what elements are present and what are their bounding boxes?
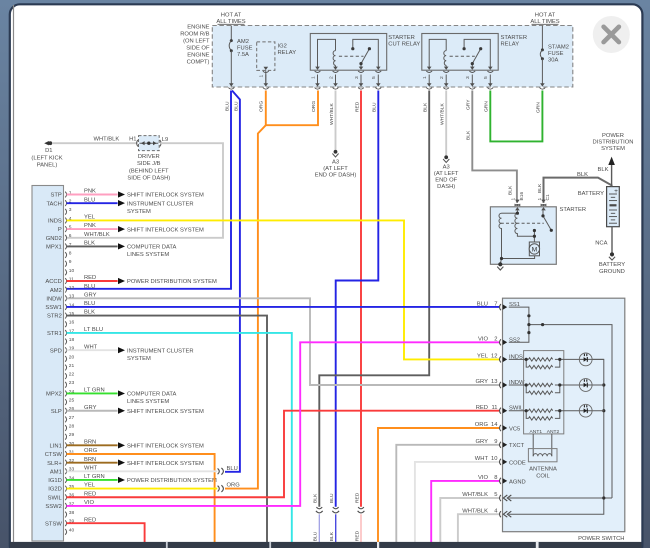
svg-text:WHT/BLK: WHT/BLK bbox=[440, 103, 446, 125]
svg-text:WHT/BLK: WHT/BLK bbox=[329, 103, 335, 125]
svg-text:CUT RELAY: CUT RELAY bbox=[388, 41, 420, 47]
svg-text:(BEHIND LEFT: (BEHIND LEFT bbox=[129, 168, 169, 174]
svg-text:RED: RED bbox=[354, 101, 360, 112]
svg-text:3: 3 bbox=[354, 76, 360, 79]
svg-text:RED: RED bbox=[354, 530, 360, 541]
svg-text:BLU: BLU bbox=[224, 101, 230, 111]
svg-text:WHT: WHT bbox=[475, 456, 489, 462]
svg-text:SIDE J/B: SIDE J/B bbox=[137, 161, 161, 167]
svg-text:D1: D1 bbox=[45, 148, 52, 154]
svg-text:10: 10 bbox=[69, 268, 75, 274]
svg-text:CTSW: CTSW bbox=[45, 452, 63, 458]
svg-text:22: 22 bbox=[69, 372, 75, 378]
svg-text:B16: B16 bbox=[519, 192, 525, 201]
svg-text:STARTER: STARTER bbox=[560, 207, 587, 213]
svg-text:P: P bbox=[58, 227, 62, 233]
svg-text:BLK: BLK bbox=[577, 172, 588, 178]
svg-text:GND2: GND2 bbox=[46, 236, 62, 242]
svg-text:INSTRUMENT CLUSTER: INSTRUMENT CLUSTER bbox=[127, 348, 194, 354]
svg-text:AM2: AM2 bbox=[50, 288, 62, 294]
svg-text:BLU: BLU bbox=[329, 493, 335, 503]
svg-text:STSW: STSW bbox=[45, 521, 62, 527]
svg-text:END OF DASH): END OF DASH) bbox=[315, 172, 357, 178]
svg-text:LINES SYSTEM: LINES SYSTEM bbox=[127, 399, 169, 405]
svg-text:SIDE OF: SIDE OF bbox=[186, 46, 210, 52]
svg-text:SWIL: SWIL bbox=[48, 495, 63, 501]
svg-text:VIO: VIO bbox=[478, 475, 488, 481]
svg-text:SLR+: SLR+ bbox=[47, 461, 62, 467]
svg-text:SSW2: SSW2 bbox=[45, 504, 61, 510]
svg-text:SHIFT INTERLOCK SYSTEM: SHIFT INTERLOCK SYSTEM bbox=[127, 461, 204, 467]
svg-text:BLU: BLU bbox=[313, 531, 319, 541]
svg-text:14: 14 bbox=[491, 422, 498, 428]
svg-text:M: M bbox=[532, 246, 538, 253]
svg-text:SYSTEM: SYSTEM bbox=[601, 146, 625, 152]
svg-text:ENGINE: ENGINE bbox=[187, 53, 209, 59]
svg-text:30A: 30A bbox=[548, 57, 558, 63]
svg-text:TACH: TACH bbox=[46, 201, 61, 207]
svg-text:STARTER: STARTER bbox=[388, 35, 415, 41]
svg-text:GRN: GRN bbox=[536, 102, 542, 113]
svg-text:END OF: END OF bbox=[435, 178, 457, 184]
svg-text:STR2: STR2 bbox=[47, 314, 62, 320]
svg-text:ORG: ORG bbox=[475, 422, 489, 428]
svg-text:12: 12 bbox=[491, 354, 497, 360]
svg-text:BLU: BLU bbox=[372, 102, 378, 112]
svg-text:INSTRUMENT CLUSTER: INSTRUMENT CLUSTER bbox=[127, 201, 194, 207]
svg-text:AGND: AGND bbox=[509, 479, 526, 485]
svg-text:BATTERY: BATTERY bbox=[578, 191, 604, 197]
svg-text:ORG: ORG bbox=[259, 101, 265, 112]
svg-text:SSW1: SSW1 bbox=[45, 305, 61, 311]
svg-text:(AT LEFT: (AT LEFT bbox=[323, 166, 348, 172]
svg-text:A3: A3 bbox=[332, 159, 339, 165]
svg-text:FUSE: FUSE bbox=[548, 51, 564, 57]
svg-text:3: 3 bbox=[465, 76, 471, 79]
svg-text:NCA: NCA bbox=[595, 240, 607, 246]
svg-text:ANTENNA: ANTENNA bbox=[529, 466, 557, 472]
svg-text:BLU: BLU bbox=[84, 284, 95, 290]
svg-text:1: 1 bbox=[258, 75, 264, 78]
svg-text:RELAY: RELAY bbox=[501, 41, 520, 47]
svg-text:GRN: GRN bbox=[484, 101, 490, 112]
svg-text:CODE: CODE bbox=[509, 460, 526, 466]
svg-text:COIL: COIL bbox=[536, 473, 550, 479]
svg-text:GRY: GRY bbox=[466, 99, 472, 110]
svg-text:21: 21 bbox=[69, 363, 75, 369]
svg-text:SYSTEM: SYSTEM bbox=[127, 209, 151, 215]
svg-text:7: 7 bbox=[494, 301, 497, 307]
svg-text:28: 28 bbox=[69, 423, 75, 429]
svg-text:20: 20 bbox=[69, 354, 75, 360]
svg-text:POWER SWITCH: POWER SWITCH bbox=[578, 536, 624, 542]
svg-text:8: 8 bbox=[494, 475, 497, 481]
svg-text:HOT AT: HOT AT bbox=[535, 13, 556, 19]
svg-text:FUSE: FUSE bbox=[237, 46, 253, 52]
svg-text:INDW: INDW bbox=[46, 296, 62, 302]
svg-text:STP: STP bbox=[51, 193, 62, 199]
svg-text:A3: A3 bbox=[443, 165, 450, 171]
svg-text:WHT/BLK: WHT/BLK bbox=[462, 508, 488, 514]
svg-text:C1: C1 bbox=[545, 194, 551, 201]
svg-text:AM1: AM1 bbox=[50, 469, 62, 475]
svg-text:(ON LEFT: (ON LEFT bbox=[183, 39, 210, 45]
svg-text:INDS: INDS bbox=[48, 219, 62, 225]
svg-text:BLK: BLK bbox=[423, 102, 429, 112]
svg-text:ANT2: ANT2 bbox=[547, 429, 560, 435]
svg-text:27: 27 bbox=[69, 415, 75, 421]
svg-text:16: 16 bbox=[69, 320, 75, 326]
svg-text:IG1D: IG1D bbox=[48, 478, 62, 484]
svg-text:WHT/BLK: WHT/BLK bbox=[94, 137, 120, 143]
svg-text:HOT AT: HOT AT bbox=[221, 13, 242, 19]
svg-text:(LEFT KICK: (LEFT KICK bbox=[31, 155, 62, 161]
svg-text:WHT/BLK: WHT/BLK bbox=[462, 492, 488, 498]
svg-text:L9: L9 bbox=[162, 137, 168, 143]
svg-text:5: 5 bbox=[371, 76, 377, 79]
svg-text:BATTERY: BATTERY bbox=[599, 262, 625, 268]
svg-text:BLK: BLK bbox=[466, 130, 472, 140]
svg-text:2: 2 bbox=[328, 76, 334, 79]
svg-text:MPX1: MPX1 bbox=[46, 245, 62, 251]
svg-text:STR1: STR1 bbox=[47, 331, 62, 337]
svg-text:RED: RED bbox=[354, 492, 360, 503]
svg-text:IG2D: IG2D bbox=[48, 487, 62, 493]
svg-text:ACCD: ACCD bbox=[45, 279, 61, 285]
svg-text:9: 9 bbox=[494, 439, 497, 445]
svg-text:ORG: ORG bbox=[227, 483, 241, 489]
svg-text:RED: RED bbox=[476, 405, 488, 411]
svg-text:23: 23 bbox=[69, 380, 75, 386]
svg-text:+: + bbox=[614, 188, 618, 195]
svg-text:2: 2 bbox=[439, 76, 445, 79]
svg-text:TXCT: TXCT bbox=[509, 443, 525, 449]
svg-text:POWER: POWER bbox=[602, 133, 624, 139]
svg-text:DISTRIBUTION: DISTRIBUTION bbox=[593, 139, 634, 145]
svg-text:BLK: BLK bbox=[508, 185, 514, 195]
svg-text:9: 9 bbox=[69, 259, 72, 265]
svg-text:COMPUTER DATA: COMPUTER DATA bbox=[127, 245, 177, 251]
svg-text:6: 6 bbox=[69, 233, 72, 239]
svg-text:BLU: BLU bbox=[477, 301, 488, 307]
svg-text:10: 10 bbox=[491, 456, 497, 462]
svg-text:COMPUTER DATA: COMPUTER DATA bbox=[127, 392, 177, 398]
svg-text:GRY: GRY bbox=[476, 379, 489, 385]
svg-text:SHIFT INTERLOCK SYSTEM: SHIFT INTERLOCK SYSTEM bbox=[127, 409, 204, 415]
svg-text:STARTER: STARTER bbox=[501, 35, 528, 41]
svg-text:1: 1 bbox=[422, 76, 428, 79]
svg-text:IG2: IG2 bbox=[278, 43, 287, 49]
svg-text:SLP: SLP bbox=[51, 409, 62, 415]
svg-text:18: 18 bbox=[69, 337, 75, 343]
svg-text:29: 29 bbox=[69, 432, 75, 438]
svg-text:SHIFT INTERLOCK SYSTEM: SHIFT INTERLOCK SYSTEM bbox=[127, 444, 204, 450]
svg-text:11: 11 bbox=[491, 405, 497, 411]
svg-text:POWER DISTRIBUTION SYSTEM: POWER DISTRIBUTION SYSTEM bbox=[127, 279, 217, 285]
svg-text:1: 1 bbox=[310, 76, 316, 79]
svg-text:13: 13 bbox=[491, 379, 497, 385]
svg-text:LIN1: LIN1 bbox=[50, 443, 62, 449]
svg-text:BLU: BLU bbox=[234, 101, 240, 111]
svg-text:VC5: VC5 bbox=[509, 426, 520, 432]
svg-text:8: 8 bbox=[69, 250, 72, 256]
svg-text:BLK: BLK bbox=[537, 183, 543, 193]
svg-text:25: 25 bbox=[69, 398, 75, 404]
svg-text:H1: H1 bbox=[129, 136, 136, 142]
svg-text:POWER DISTRIBUTION SYSTEM: POWER DISTRIBUTION SYSTEM bbox=[127, 478, 217, 484]
svg-text:BLK: BLK bbox=[598, 167, 609, 173]
svg-text:SPD: SPD bbox=[50, 348, 62, 354]
svg-text:VIO: VIO bbox=[478, 337, 488, 343]
svg-text:AM2: AM2 bbox=[237, 39, 249, 45]
svg-text:7.5A: 7.5A bbox=[237, 52, 249, 58]
svg-text:5: 5 bbox=[483, 76, 489, 79]
svg-text:BLU: BLU bbox=[227, 466, 238, 472]
svg-text:ANT1: ANT1 bbox=[530, 429, 543, 435]
svg-text:BLK: BLK bbox=[329, 531, 335, 541]
svg-text:MPX2: MPX2 bbox=[46, 392, 62, 398]
svg-text:BLK: BLK bbox=[313, 493, 319, 503]
svg-text:2: 2 bbox=[494, 337, 497, 343]
svg-text:DRIVER: DRIVER bbox=[138, 154, 160, 160]
svg-text:PANEL): PANEL) bbox=[37, 163, 58, 169]
svg-text:ST/AM2: ST/AM2 bbox=[548, 44, 569, 50]
svg-text:SYSTEM: SYSTEM bbox=[127, 356, 151, 362]
svg-text:5: 5 bbox=[494, 492, 497, 498]
svg-text:COMPT): COMPT) bbox=[187, 60, 210, 66]
svg-text:LINES SYSTEM: LINES SYSTEM bbox=[127, 252, 169, 258]
svg-text:SHIFT INTERLOCK SYSTEM: SHIFT INTERLOCK SYSTEM bbox=[127, 193, 204, 199]
svg-text:12: 12 bbox=[69, 285, 75, 291]
svg-text:WHT/BLK: WHT/BLK bbox=[84, 232, 110, 238]
svg-text:(AT LEFT: (AT LEFT bbox=[434, 171, 459, 177]
svg-text:38: 38 bbox=[69, 510, 75, 516]
svg-text:RELAY: RELAY bbox=[278, 50, 297, 56]
svg-text:SIDE OF DASH): SIDE OF DASH) bbox=[127, 176, 170, 182]
svg-text:ORG: ORG bbox=[311, 101, 317, 112]
svg-text:SHIFT INTERLOCK SYSTEM: SHIFT INTERLOCK SYSTEM bbox=[127, 227, 204, 233]
svg-text:3: 3 bbox=[69, 207, 72, 213]
svg-text:GRY: GRY bbox=[476, 439, 489, 445]
svg-text:DASH): DASH) bbox=[437, 184, 455, 190]
svg-text:ROOM R/B: ROOM R/B bbox=[180, 32, 209, 38]
svg-text:GROUND: GROUND bbox=[599, 269, 625, 275]
svg-text:YEL: YEL bbox=[477, 354, 489, 360]
svg-text:40: 40 bbox=[69, 527, 75, 533]
svg-text:ENGINE: ENGINE bbox=[187, 25, 209, 31]
